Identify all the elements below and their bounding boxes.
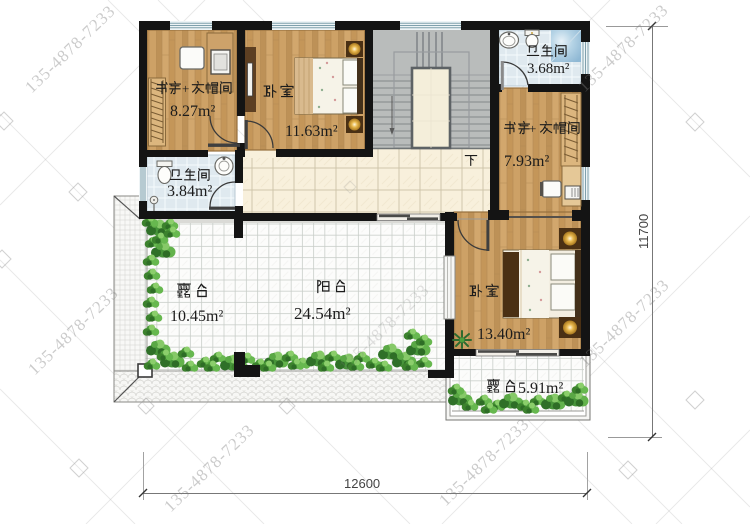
svg-text:+: + xyxy=(182,81,189,96)
svg-text:13.40m²: 13.40m² xyxy=(477,326,530,343)
svg-text:10.45m²: 10.45m² xyxy=(170,308,223,325)
svg-text:7.93m²: 7.93m² xyxy=(504,153,549,170)
svg-text:11700: 11700 xyxy=(636,214,651,249)
svg-text:3.84m²: 3.84m² xyxy=(167,183,212,200)
svg-text:24.54m²: 24.54m² xyxy=(294,304,351,323)
svg-text:+: + xyxy=(529,121,536,136)
svg-text:3.68m²: 3.68m² xyxy=(527,61,570,77)
svg-text:8.27m²: 8.27m² xyxy=(170,103,215,120)
svg-text:5.91m²: 5.91m² xyxy=(518,380,563,397)
svg-text:12600: 12600 xyxy=(344,476,380,491)
svg-text:11.63m²: 11.63m² xyxy=(285,123,338,140)
